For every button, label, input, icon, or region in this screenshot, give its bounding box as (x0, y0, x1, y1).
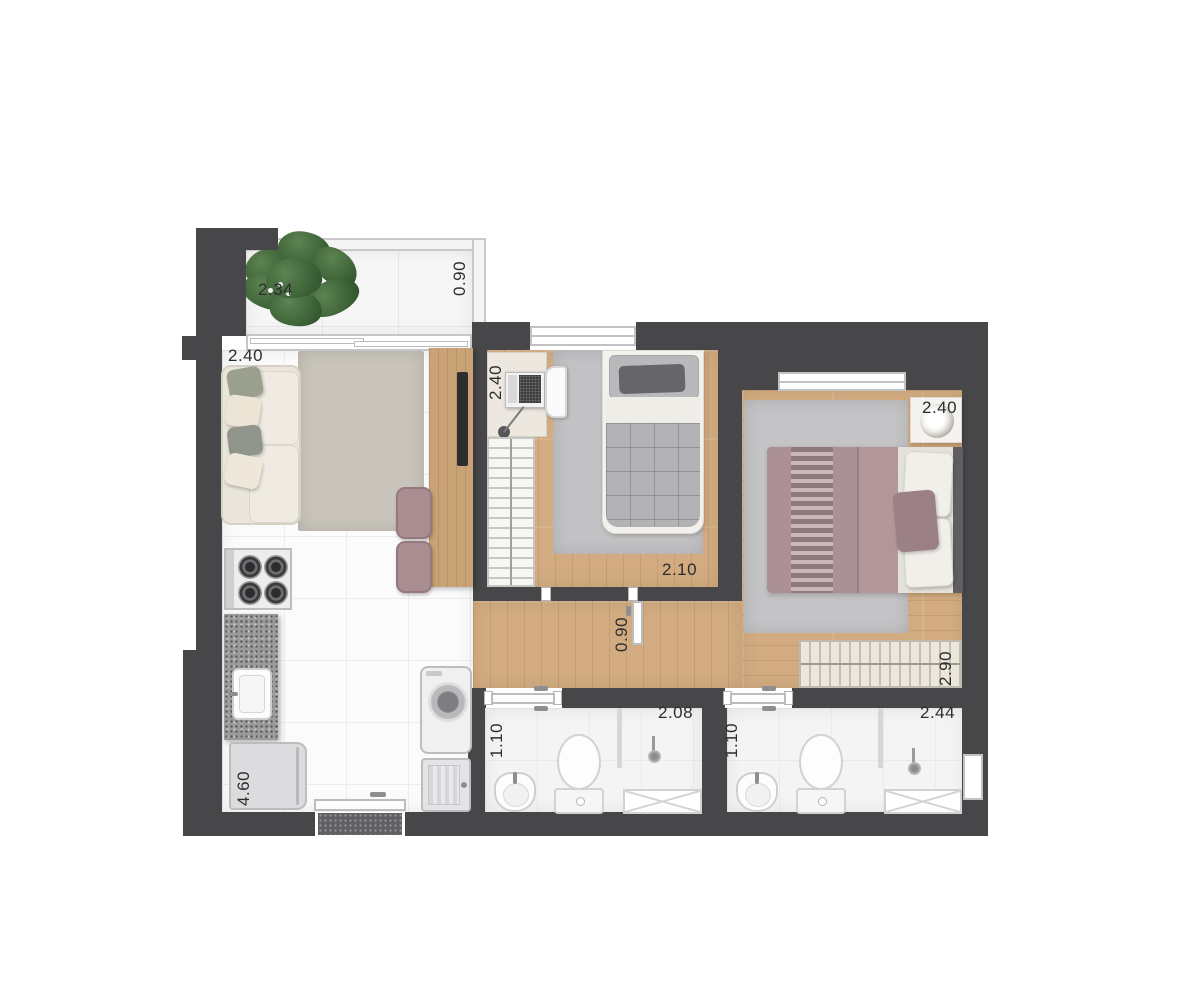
bed-pillow-accent (619, 364, 686, 394)
dim-bath2-width: 1.10 (722, 723, 742, 758)
door-post (541, 587, 551, 601)
shower-head (908, 748, 928, 778)
dim-bath1-width: 1.10 (487, 723, 507, 758)
hall-floor (473, 601, 742, 688)
shower-tray (623, 789, 702, 814)
bathroom2-door-handle (762, 686, 776, 691)
bedroom1-window (530, 326, 636, 346)
dim-balcony-depth: 0.90 (450, 261, 470, 296)
doormat (318, 813, 402, 835)
dim-hall-width: 0.90 (612, 617, 632, 652)
bathroom2-door-handle (762, 706, 776, 711)
desk-chair (545, 366, 567, 418)
wall-left-stub-bottom (183, 650, 196, 836)
wall-left (196, 336, 222, 836)
stool (396, 487, 432, 539)
bedroom1-door-handle (626, 606, 631, 616)
dim-bedroom1-length: 2.10 (662, 560, 697, 580)
floor-plan: 2.34 0.90 2.40 2.40 2.10 0.90 2.40 2.90 … (0, 0, 1195, 1000)
shower-head (648, 736, 668, 766)
shower-window (963, 754, 983, 800)
bathroom1-basin (494, 772, 536, 812)
bed-blanket (606, 423, 700, 527)
bed-sheet-fold (606, 397, 700, 423)
dim-living-width: 2.40 (228, 346, 263, 366)
bedroom1-wardrobe (487, 437, 535, 587)
entrance-door (314, 799, 406, 811)
dim-bedroom1-width: 2.40 (486, 365, 506, 400)
bathroom1-door (491, 693, 555, 704)
wall-left-stub-top (182, 336, 196, 360)
cooktop (224, 548, 292, 610)
bathroom1-toilet (554, 734, 604, 814)
laptop (505, 372, 545, 408)
desk-lamp (496, 404, 528, 436)
wall-balcony-left (196, 228, 246, 336)
wall-bedroom1-bottom (473, 587, 742, 601)
bedroom1-door (632, 601, 643, 645)
door-post (628, 587, 638, 601)
bathroom1-door-handle (534, 686, 548, 691)
bathroom1-door-handle (534, 706, 548, 711)
laundry-tank (421, 758, 471, 812)
dim-master-width: 2.40 (922, 398, 957, 418)
wall-bedroom1-right (718, 322, 742, 600)
bathroom2-toilet (796, 734, 846, 814)
entrance-door-handle (370, 792, 386, 797)
wall-bottom-right (405, 812, 988, 836)
shower-tray (884, 789, 962, 814)
stool (396, 541, 432, 593)
dim-balcony-width: 2.34 (258, 280, 293, 300)
throw-pillow (223, 452, 264, 491)
throw-pillow (224, 394, 262, 429)
wall-bottom-left (196, 812, 315, 836)
tv-panel (457, 372, 468, 466)
kitchen-sink (232, 668, 272, 720)
wall-baths-top-b (562, 688, 725, 708)
bed-runner (791, 447, 833, 593)
single-bed (602, 350, 704, 534)
dim-kitchen-length: 4.60 (234, 771, 254, 806)
bathroom2-basin (736, 772, 778, 812)
bathroom2-door (730, 693, 786, 704)
shower-partition (617, 708, 622, 768)
dim-master-closet: 2.90 (936, 651, 956, 686)
wall-right (962, 390, 988, 812)
bed-pillow-accent (892, 489, 939, 552)
double-bed (767, 447, 963, 593)
dim-bath1-length: 2.08 (658, 703, 693, 723)
bed-headboard (953, 447, 963, 593)
washing-machine (420, 666, 472, 754)
dim-bath2-length: 2.44 (920, 703, 955, 723)
shower-partition (878, 708, 883, 768)
master-bedroom-window (778, 372, 906, 391)
wall-baths-top-c (792, 688, 988, 708)
wall-living-bedroom1-partition (473, 336, 487, 601)
